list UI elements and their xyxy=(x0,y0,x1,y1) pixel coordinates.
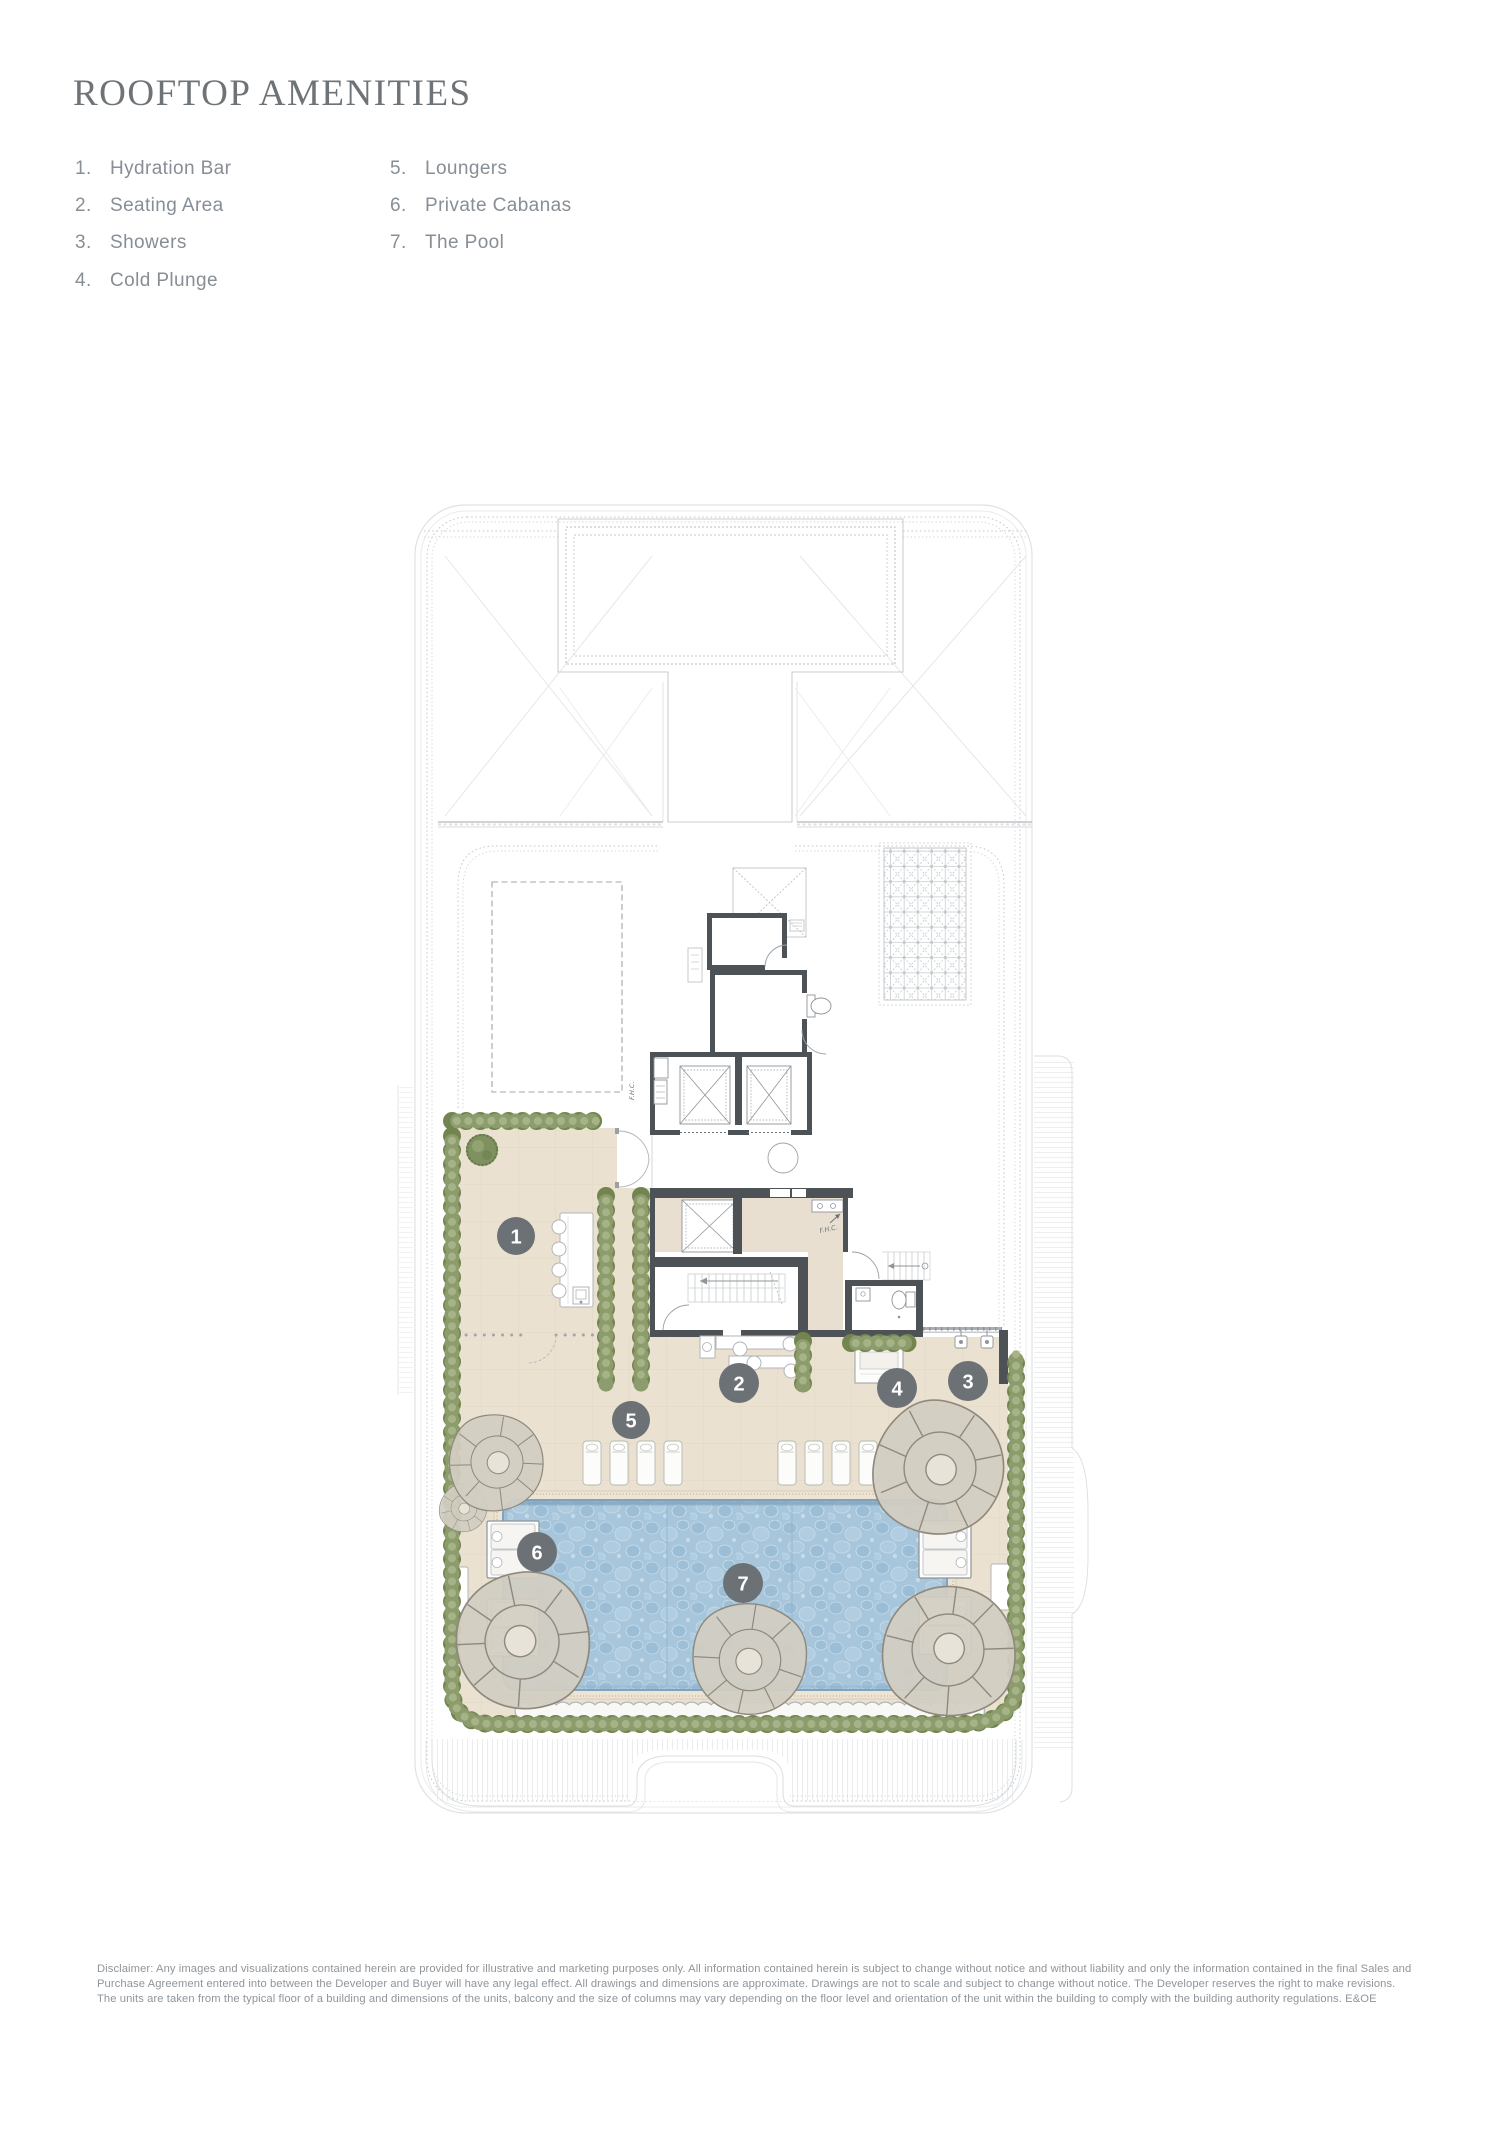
rooftop-floor-plan: F.H.C. F.H.C. xyxy=(0,0,1500,2131)
side-stairs xyxy=(882,1252,930,1280)
marker-1: 1 xyxy=(497,1217,535,1255)
fhc-note: F.H.C. xyxy=(628,1081,636,1100)
marker-7: 7 xyxy=(723,1563,763,1603)
svg-text:2: 2 xyxy=(733,1374,744,1396)
marker-5: 5 xyxy=(612,1401,650,1439)
marker-4: 4 xyxy=(877,1368,917,1408)
svg-text:7: 7 xyxy=(737,1574,748,1596)
marker-3: 3 xyxy=(948,1361,988,1401)
svg-text:4: 4 xyxy=(891,1379,903,1401)
marker-2: 2 xyxy=(719,1363,759,1403)
disclaimer-text: Disclaimer: Any images and visualization… xyxy=(97,1962,1413,2007)
pergola-trellis xyxy=(879,843,971,1005)
svg-text:3: 3 xyxy=(962,1372,973,1394)
svg-text:5: 5 xyxy=(625,1411,636,1433)
elevator-car xyxy=(680,1066,730,1124)
svg-text:1: 1 xyxy=(510,1227,521,1249)
rooftop-skylight xyxy=(558,519,903,822)
marker-6: 6 xyxy=(517,1532,557,1572)
roof-bracing xyxy=(445,556,1026,816)
svg-text:6: 6 xyxy=(531,1543,542,1565)
terrace-tree xyxy=(466,1134,498,1166)
roof-hatch-outline xyxy=(492,882,622,1092)
elevator-car xyxy=(747,1066,791,1124)
